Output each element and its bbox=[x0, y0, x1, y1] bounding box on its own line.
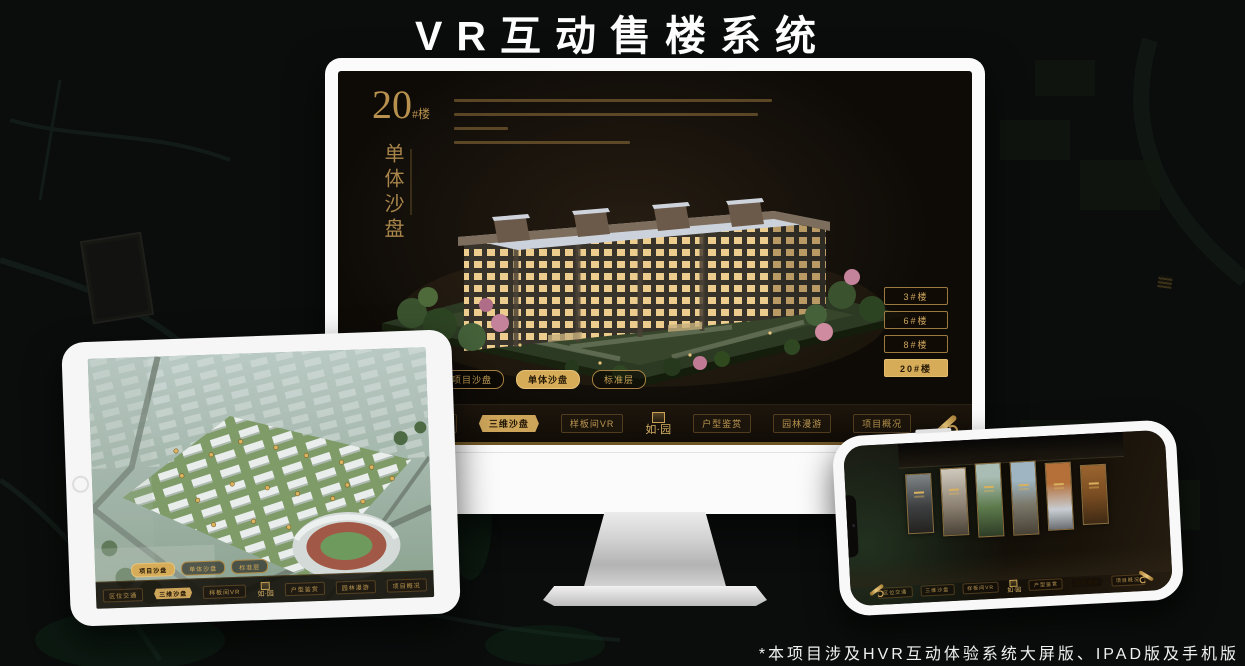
footnote-caption: *本项目涉及HVR互动体验系统大屏版、IPAD版及手机版 bbox=[759, 640, 1239, 664]
nav-item-overview[interactable]: 项目概况 bbox=[853, 414, 911, 433]
building-model-render bbox=[368, 127, 928, 395]
background-plaque bbox=[80, 232, 154, 325]
brand-logo: 如·园 bbox=[1007, 579, 1022, 594]
tablet-tab-single-sandbox[interactable]: 单体沙盘 bbox=[181, 560, 225, 576]
promo-poster: VR互动售楼系统 20#楼 单体沙盘 bbox=[0, 0, 1245, 666]
brand-logo-text: 如·园 bbox=[257, 591, 274, 599]
nav-item-floorplans[interactable]: 户型鉴赏 bbox=[693, 414, 751, 433]
nav-item-overview[interactable]: 项目概况 bbox=[386, 578, 426, 592]
scene-card[interactable] bbox=[1045, 462, 1075, 531]
tablet-device: 项目沙盘 单体沙盘 标准层 区位交通 三维沙盘 样板间VR 如·园 户型鉴赏 园… bbox=[61, 329, 461, 626]
scene-card[interactable] bbox=[975, 462, 1005, 537]
description-line bbox=[454, 113, 758, 116]
tablet-tab-standard-floor[interactable]: 标准层 bbox=[231, 559, 268, 574]
brand-logo-text: 如·园 bbox=[1007, 587, 1021, 594]
scene-card[interactable] bbox=[1080, 464, 1109, 525]
scroll-curl bbox=[1139, 576, 1147, 584]
brand-logo: 如·园 bbox=[257, 582, 274, 599]
brand-logo: 如·园 bbox=[645, 412, 671, 436]
floor-button-3[interactable]: 3#楼 bbox=[884, 287, 948, 305]
block-number: 20 bbox=[372, 82, 412, 127]
phone-screen: 区位交通 三维沙盘 样板间VR 如·园 户型鉴赏 园林漫游 项目概况 bbox=[843, 430, 1173, 607]
scroll-handle-icon[interactable] bbox=[867, 582, 886, 598]
background-logo-glint bbox=[1157, 275, 1173, 289]
nav-item-showroom-vr[interactable]: 样板间VR bbox=[203, 584, 247, 599]
nav-item-3d-sandbox[interactable]: 三维沙盘 bbox=[479, 415, 539, 432]
block-number-suffix: #楼 bbox=[412, 107, 430, 121]
scene-card[interactable] bbox=[1010, 460, 1040, 535]
brand-logo-text: 如·园 bbox=[645, 425, 671, 436]
block-heading: 20#楼 bbox=[372, 85, 430, 125]
nav-item-garden-roam[interactable]: 园林漫游 bbox=[335, 580, 375, 594]
nav-item-garden-roam[interactable]: 园林漫游 bbox=[1071, 577, 1103, 588]
phone-notch bbox=[846, 495, 859, 557]
nav-item-3d-sandbox[interactable]: 三维沙盘 bbox=[920, 584, 955, 597]
monitor-stand-neck bbox=[583, 512, 727, 590]
floor-button-8[interactable]: 8#楼 bbox=[884, 335, 948, 353]
tab-single-sandbox[interactable]: 单体沙盘 bbox=[516, 370, 580, 389]
scene-card[interactable] bbox=[940, 467, 970, 536]
tablet-tab-project-sandbox[interactable]: 项目沙盘 bbox=[131, 562, 175, 578]
nav-item-floorplans[interactable]: 户型鉴赏 bbox=[284, 581, 324, 595]
view-tab-group: 项目沙盘 单体沙盘 标准层 bbox=[440, 370, 646, 389]
tablet-screen: 项目沙盘 单体沙盘 标准层 区位交通 三维沙盘 样板间VR 如·园 户型鉴赏 园… bbox=[88, 347, 435, 609]
brand-seal-icon bbox=[652, 412, 665, 423]
scene-gallery bbox=[905, 457, 1110, 541]
page-title: VR互动售楼系统 bbox=[0, 2, 1245, 62]
monitor-stand-base bbox=[543, 586, 767, 606]
nav-item-3d-sandbox[interactable]: 三维沙盘 bbox=[154, 587, 192, 599]
brand-seal-icon bbox=[1010, 579, 1018, 586]
floor-button-20[interactable]: 20#楼 bbox=[884, 359, 948, 377]
nav-item-showroom-vr[interactable]: 样板间VR bbox=[561, 414, 624, 433]
scene-card[interactable] bbox=[905, 473, 934, 534]
description-line bbox=[454, 99, 772, 102]
phone-device: 区位交通 三维沙盘 样板间VR 如·园 户型鉴赏 园林漫游 项目概况 bbox=[832, 419, 1185, 617]
scroll-curl bbox=[877, 590, 884, 597]
nav-item-location[interactable]: 区位交通 bbox=[103, 588, 143, 602]
nav-item-garden-roam[interactable]: 园林漫游 bbox=[773, 414, 831, 433]
floor-button-group: 3#楼 6#楼 8#楼 20#楼 bbox=[884, 287, 948, 377]
floor-button-6[interactable]: 6#楼 bbox=[884, 311, 948, 329]
phone-side-button[interactable] bbox=[915, 428, 951, 434]
tab-standard-floor[interactable]: 标准层 bbox=[592, 370, 646, 389]
nav-item-floorplans[interactable]: 户型鉴赏 bbox=[1029, 578, 1064, 591]
tablet-home-button[interactable] bbox=[72, 476, 90, 494]
nav-item-showroom-vr[interactable]: 样板间VR bbox=[962, 582, 999, 595]
